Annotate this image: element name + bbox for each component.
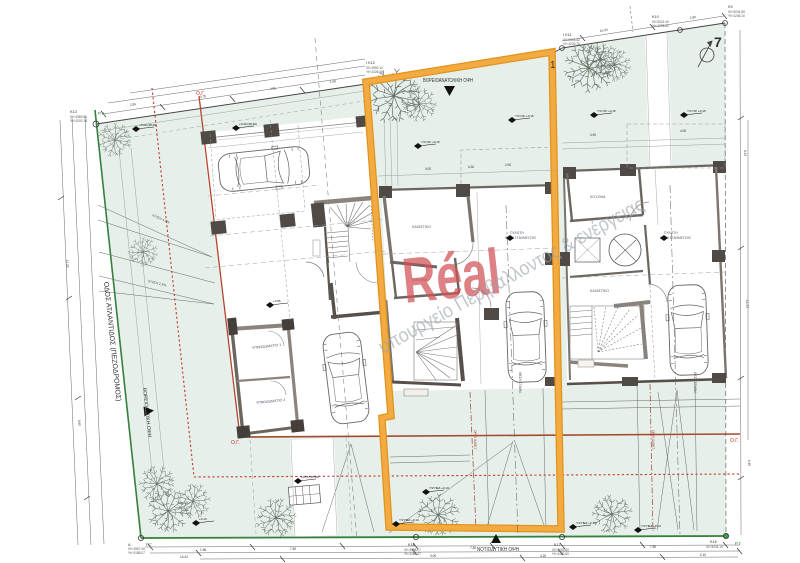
svg-text:ΧΗ 5034.10: ΧΗ 5034.10 xyxy=(706,545,723,549)
svg-text:8.15: 8.15 xyxy=(743,150,747,157)
svg-text:ΥΨ.ΟΨ.+0.15: ΥΨ.ΟΨ.+0.15 xyxy=(515,114,534,118)
svg-text:4.20: 4.20 xyxy=(540,554,546,558)
svg-text:Κ9: Κ9 xyxy=(728,5,733,9)
svg-text:+0.00 (38.40): +0.00 (38.40) xyxy=(139,123,157,127)
svg-text:ΥΗ 4226.05: ΥΗ 4226.05 xyxy=(366,70,383,74)
svg-text:Κ18: Κ18 xyxy=(408,543,415,547)
svg-text:Ρ.Γ.: Ρ.Γ. xyxy=(735,541,742,546)
svg-text:ΥΗ 4188.07: ΥΗ 4188.07 xyxy=(128,551,145,555)
svg-text:11.25: 11.25 xyxy=(65,260,70,268)
svg-text:2.95: 2.95 xyxy=(130,102,137,107)
svg-text:+0.10: +0.10 xyxy=(199,517,207,521)
svg-text:14.42: 14.42 xyxy=(180,555,188,559)
svg-text:ΝΟΤΙΟΔΥΤΙΚΗ ΟΨΗ: ΝΟΤΙΟΔΥΤΙΚΗ ΟΨΗ xyxy=(477,547,519,553)
svg-text:ΟΡΙΟ ΙΔΙΟΚΤ.: ΟΡΙΟ ΙΔΙΟΚΤ. xyxy=(473,430,477,450)
svg-text:ΥΗ 4229.76: ΥΗ 4229.76 xyxy=(563,42,580,46)
svg-text:ΒΟΡΕΙΟΑΝΑΤΟΛΙΚΗ ΟΨΗ: ΒΟΡΕΙΟΑΝΑΤΟΛΙΚΗ ΟΨΗ xyxy=(423,78,473,84)
svg-text:Ι Κ12: Ι Κ12 xyxy=(366,61,375,65)
svg-text:Κ16: Κ16 xyxy=(710,540,717,544)
svg-text:+0.00 (38.40): +0.00 (38.40) xyxy=(239,122,257,126)
svg-text:ΚΑΘΙΣΤΙΚΟ: ΚΑΘΙΣΤΙΚΟ xyxy=(590,289,609,293)
svg-text:ΥΨ.ΠΕΖ.+0.10: ΥΨ.ΠΕΖ.+0.10 xyxy=(399,518,419,522)
svg-text:Ο.Γ.: Ο.Γ. xyxy=(231,440,240,446)
svg-text:1: 1 xyxy=(550,60,556,71)
svg-text:+0.55 (38.95): +0.55 (38.95) xyxy=(301,475,319,479)
svg-text:ΘΕΣΗ ΣΤΑΘΜ.: ΘΕΣΗ ΣΤΑΘΜ. xyxy=(518,372,522,394)
svg-text:3.00: 3.00 xyxy=(430,554,436,558)
svg-text:6.40: 6.40 xyxy=(747,460,751,467)
svg-text:ΘΕΣΗ ΣΤΑΘΜ.: ΘΕΣΗ ΣΤΑΘΜ. xyxy=(693,372,697,394)
svg-text:ΥΨ.ΠΕΖ.+0.10: ΥΨ.ΠΕΖ.+0.10 xyxy=(429,486,449,490)
svg-text:Κ13: Κ13 xyxy=(70,110,77,114)
svg-text:2.10: 2.10 xyxy=(700,553,706,557)
svg-text:7: 7 xyxy=(714,34,722,50)
svg-text:Ρ.Γ.: Ρ.Γ. xyxy=(98,111,105,116)
svg-text:9.80: 9.80 xyxy=(77,420,82,427)
svg-text:Ρ.Γ.: Ρ.Γ. xyxy=(146,542,152,547)
svg-text:3.70: 3.70 xyxy=(200,94,207,99)
svg-text:ΥΨ.ΟΨ.+0.15: ΥΨ.ΟΨ.+0.15 xyxy=(687,109,706,113)
svg-text:1.96: 1.96 xyxy=(200,548,206,552)
svg-text:0.30: 0.30 xyxy=(468,165,475,169)
svg-text:12.33: 12.33 xyxy=(745,300,750,308)
svg-text:7.50: 7.50 xyxy=(650,545,656,549)
svg-text:ΚΑΘΙΣΤΙΚΟ: ΚΑΘΙΣΤΙΚΟ xyxy=(412,225,431,229)
svg-text:4.08: 4.08 xyxy=(680,129,687,133)
svg-text:Ι Κ11: Ι Κ11 xyxy=(563,33,572,37)
svg-text:2.60: 2.60 xyxy=(505,163,512,167)
svg-text:ΥΨ.ΟΨ.+0.15: ΥΨ.ΟΨ.+0.15 xyxy=(421,140,440,144)
svg-text:7.50: 7.50 xyxy=(290,547,296,551)
svg-text:Κ17: Κ17 xyxy=(554,543,561,547)
svg-text:ΠΥΛΩΤΗ: ΠΥΛΩΤΗ xyxy=(510,231,524,235)
svg-text:7.50: 7.50 xyxy=(470,546,476,550)
svg-text:Ο.Γ.: Ο.Γ. xyxy=(730,438,739,444)
svg-text:ΥΗ 4236.10: ΥΗ 4236.10 xyxy=(728,14,745,18)
svg-text:4.05: 4.05 xyxy=(270,86,277,91)
svg-text:ΥΨ.ΠΕΖ.+0.10: ΥΨ.ΠΕΖ.+0.10 xyxy=(641,524,661,528)
svg-text:3.60: 3.60 xyxy=(590,133,597,137)
svg-text:+0.95: +0.95 xyxy=(273,299,281,303)
svg-text:ΥΗ 4203.18: ΥΗ 4203.18 xyxy=(70,119,87,123)
svg-text:ΥΗ 4233.60: ΥΗ 4233.60 xyxy=(652,24,669,28)
svg-text:ΥΨ.ΠΕΖ.+0.10: ΥΨ.ΠΕΖ.+0.10 xyxy=(576,521,596,525)
svg-text:Κ10: Κ10 xyxy=(652,15,659,19)
svg-text:ΥΨ.ΟΨ.+0.15: ΥΨ.ΟΨ.+0.15 xyxy=(597,109,616,113)
svg-text:ΥΗ 4180.27: ΥΗ 4180.27 xyxy=(404,552,421,556)
svg-text:ΚΟΥΖΙΝΑ: ΚΟΥΖΙΝΑ xyxy=(590,195,606,199)
svg-text:ΥΗ 4180.60: ΥΗ 4180.60 xyxy=(552,552,569,556)
svg-text:1.80: 1.80 xyxy=(330,79,337,84)
svg-text:3.05: 3.05 xyxy=(425,167,432,171)
svg-text:ΟΡΙΟ ΙΔΙΟΚΤ.: ΟΡΙΟ ΙΔΙΟΚΤ. xyxy=(651,430,655,450)
